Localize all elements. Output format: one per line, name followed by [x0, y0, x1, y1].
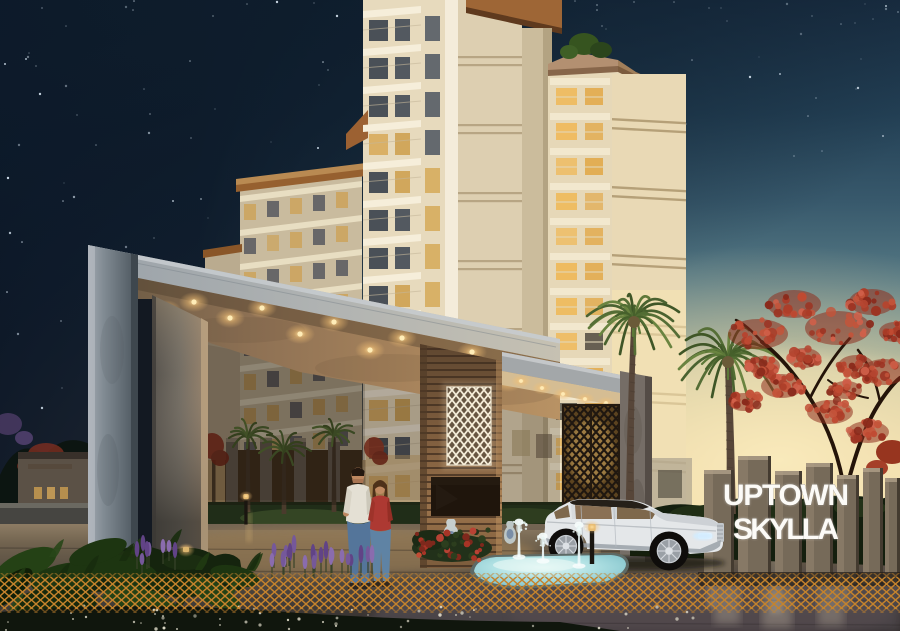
svg-text:SKYLLA: SKYLLA [733, 513, 839, 546]
svg-text:UPTOWN: UPTOWN [723, 479, 849, 512]
